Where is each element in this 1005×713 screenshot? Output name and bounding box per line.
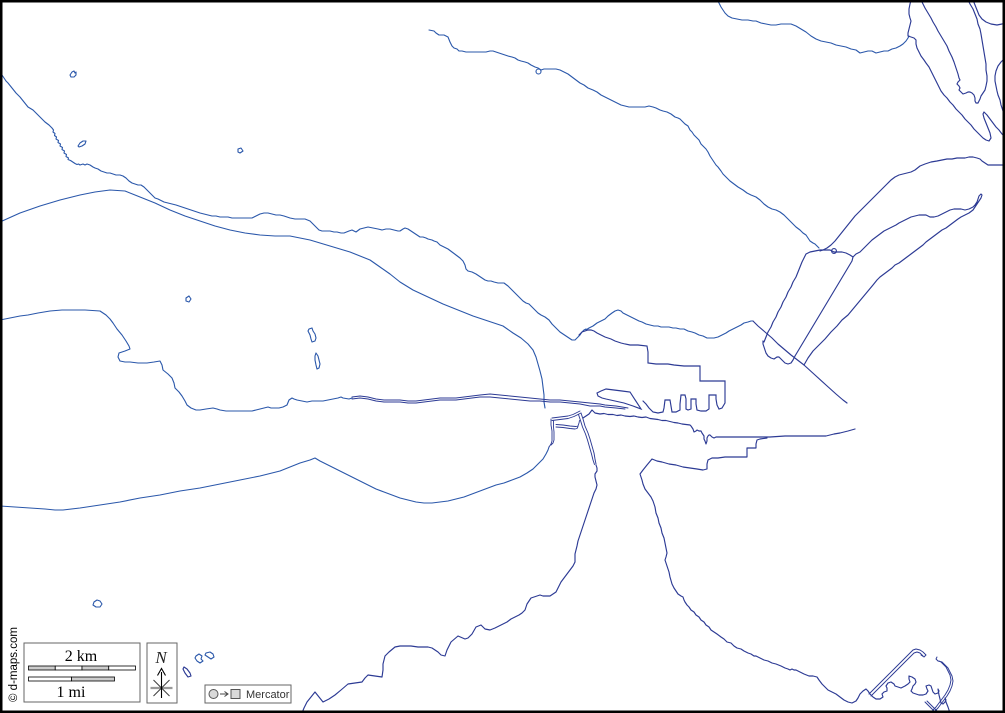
- svg-text:2 km: 2 km: [65, 648, 98, 665]
- svg-text:N: N: [154, 648, 168, 667]
- svg-text:© d-maps.com: © d-maps.com: [8, 627, 20, 702]
- svg-text:Mercator: Mercator: [246, 689, 290, 701]
- svg-text:1 mi: 1 mi: [57, 684, 86, 701]
